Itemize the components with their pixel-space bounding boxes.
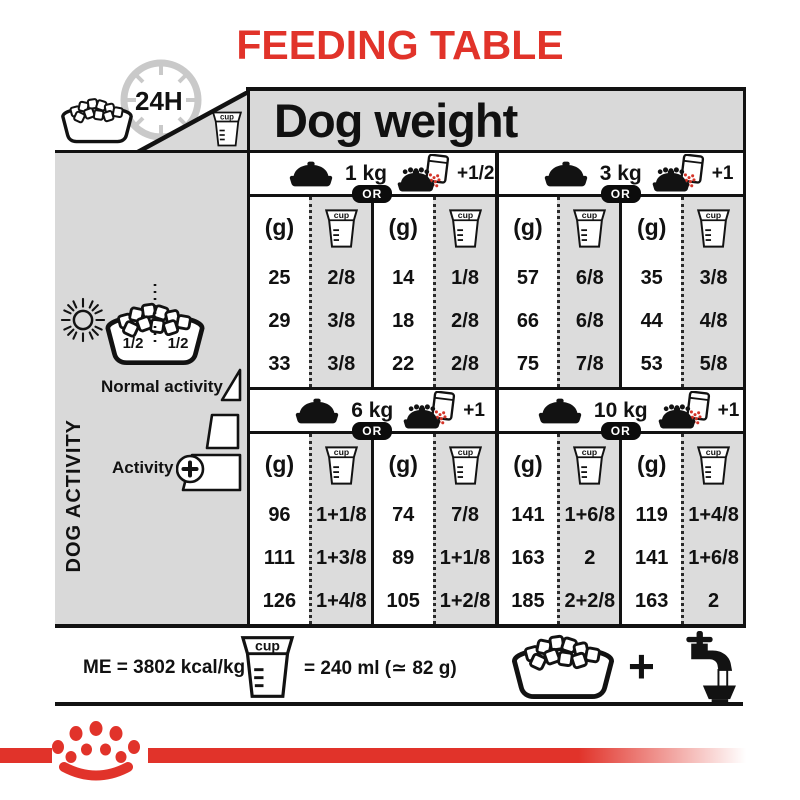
brand-strip-left (0, 748, 52, 763)
grams-column: (g) 119 141 163 (622, 434, 681, 624)
cup-icon (213, 113, 241, 146)
weight-group-1kg: 1 kg +1/2 OR (250, 153, 495, 194)
grams-value: 75 (499, 343, 558, 386)
weight-label: 10 kg (594, 399, 648, 422)
brand-strip (148, 748, 746, 763)
grams-value: 18 (374, 300, 433, 343)
cup-header (684, 434, 743, 494)
cup-value: 2 (560, 537, 619, 580)
cup-value: 1/8 (436, 257, 495, 300)
cup-icon (325, 208, 358, 249)
weight-band-row-2: 6 kg +1 OR 10 kg +1 OR (250, 390, 743, 434)
cup-column: 1+4/8 1+6/8 2 (681, 434, 743, 624)
activity-label: Activity (112, 458, 173, 478)
me-kcal-label: ME = 3802 kcal/kg (83, 657, 245, 679)
cup-column: 1+6/8 2 2+2/8 (557, 434, 619, 624)
cup-column: 3/8 4/8 5/8 (681, 197, 743, 387)
grams-value: 89 (374, 537, 433, 580)
cup-value: 7/8 (560, 343, 619, 386)
grams-value: 74 (374, 494, 433, 537)
pouch-extra-label: +1 (463, 400, 485, 422)
footer-info: ME = 3802 kcal/kg = 240 ml (≃ 82 g) + (55, 631, 746, 702)
grams-value: 105 (374, 580, 433, 623)
dog-weight-header: Dog weight (250, 91, 746, 150)
activity-ramp-icon (176, 366, 246, 492)
weight-group-6kg: 6 kg +1 OR (250, 390, 495, 431)
bowl-pouch-icon (397, 154, 453, 194)
grams-value: 126 (250, 580, 309, 623)
cup-column: 2/8 3/8 3/8 (309, 197, 371, 387)
weight-group-10kg: 10 kg +1 OR (499, 390, 744, 431)
grams-column: (g) 74 89 105 (374, 434, 433, 624)
grams-header: (g) (374, 197, 433, 257)
table-left-border (247, 87, 250, 628)
cup-value: 2+2/8 (560, 580, 619, 623)
table-bottom-border (55, 624, 746, 628)
or-badge: OR (601, 422, 641, 440)
cup-value: 1+3/8 (312, 537, 371, 580)
cup-value: 5/8 (684, 343, 743, 386)
cup-value: 1+4/8 (312, 580, 371, 623)
cup-header (312, 434, 371, 494)
cup-value: 3/8 (312, 300, 371, 343)
cup-icon (325, 445, 358, 486)
cup-icon (449, 208, 482, 249)
grams-column: (g) 25 29 33 (250, 197, 309, 387)
grams-header: (g) (250, 434, 309, 494)
cup-value: 6/8 (560, 257, 619, 300)
grams-header: (g) (622, 197, 681, 257)
24h-label: 24H (135, 86, 183, 117)
bowl-pouch-icon (658, 391, 714, 431)
weight-label: 1 kg (345, 162, 387, 185)
cup-icon (449, 445, 482, 486)
grams-value: 119 (622, 494, 681, 537)
dog-weight-label: Dog weight (274, 93, 517, 148)
cup-value: 1+6/8 (684, 537, 743, 580)
cup-value: 1+2/8 (436, 580, 495, 623)
bowl-icon (295, 398, 339, 424)
grams-column: (g) 14 18 22 (374, 197, 433, 387)
cup-value: 2/8 (436, 343, 495, 386)
grams-value: 33 (250, 343, 309, 386)
bowl-icon (544, 161, 588, 187)
cup-value: 1+4/8 (684, 494, 743, 537)
data-block-2: (g) 96 111 126 1+1/8 1+3/8 1+4/8 (g) 74 … (250, 434, 743, 624)
feeding-table-page: { "title": "FEEDING TABLE", "colors": {"… (0, 0, 800, 800)
cup-icon (240, 635, 295, 699)
grams-value: 141 (499, 494, 558, 537)
cup-column: 7/8 1+1/8 1+2/8 (433, 434, 495, 624)
cup-header (684, 197, 743, 257)
grams-value: 22 (374, 343, 433, 386)
cup-value: 1+1/8 (312, 494, 371, 537)
plus-sign: + (628, 643, 655, 689)
cup-header (560, 197, 619, 257)
or-badge: OR (352, 422, 392, 440)
cup-header (312, 197, 371, 257)
grams-value: 14 (374, 257, 433, 300)
bowl-pouch-icon (652, 154, 708, 194)
kibble-bowl-icon (502, 632, 624, 700)
cup-value: 1+6/8 (560, 494, 619, 537)
pouch-extra-label: +1 (718, 400, 740, 422)
faucet-water-icon (662, 631, 736, 703)
cup-value: 6/8 (560, 300, 619, 343)
half-left-label: 1/2 (123, 335, 144, 352)
pouch-extra-label: +1 (712, 163, 734, 185)
grams-value: 44 (622, 300, 681, 343)
grams-value: 163 (622, 580, 681, 623)
weight-label: 6 kg (351, 399, 393, 422)
grams-value: 96 (250, 494, 309, 537)
kibble-bowl-icon (56, 96, 138, 144)
cup-equivalence-label: = 240 ml (≃ 82 g) (304, 657, 457, 680)
grams-column: (g) 35 44 53 (622, 197, 681, 387)
cup-header (436, 197, 495, 257)
moon-icon (207, 297, 234, 329)
grams-column: (g) 141 163 185 (499, 434, 558, 624)
or-badge: OR (352, 185, 392, 203)
cup-icon (697, 208, 730, 249)
bowl-icon (289, 161, 333, 187)
cup-column: 1/8 2/8 2/8 (433, 197, 495, 387)
grams-value: 141 (622, 537, 681, 580)
cup-value: 2/8 (312, 257, 371, 300)
cup-value: 4/8 (684, 300, 743, 343)
grams-header: (g) (622, 434, 681, 494)
cup-icon (697, 445, 730, 486)
weight-band-row-1: 1 kg +1/2 OR 3 kg +1 OR (250, 153, 743, 197)
cup-value: 3/8 (312, 343, 371, 386)
grams-header: (g) (374, 434, 433, 494)
weight-group-3kg: 3 kg +1 OR (499, 153, 744, 194)
table-right-border (743, 87, 746, 628)
grams-value: 57 (499, 257, 558, 300)
bowl-icon (538, 398, 582, 424)
grams-column: (g) 96 111 126 (250, 434, 309, 624)
cup-icon (573, 208, 606, 249)
grams-value: 185 (499, 580, 558, 623)
dog-activity-axis: DOG ACTIVITY (56, 368, 92, 624)
grams-value: 111 (250, 537, 309, 580)
half-right-label: 1/2 (168, 335, 189, 352)
grams-column: (g) 57 66 75 (499, 197, 558, 387)
weight-label: 3 kg (600, 162, 642, 185)
grams-value: 35 (622, 257, 681, 300)
grams-value: 53 (622, 343, 681, 386)
cup-header (560, 434, 619, 494)
bowl-pouch-icon (403, 391, 459, 431)
cup-value: 1+1/8 (436, 537, 495, 580)
cup-column: 1+1/8 1+3/8 1+4/8 (309, 434, 371, 624)
footer-bottom-border (55, 702, 743, 706)
data-block-1: (g) 25 29 33 2/8 3/8 3/8 (g) 14 18 22 1/… (250, 197, 743, 387)
half-half-bowl-icon: 1/2 1/2 (98, 284, 212, 372)
grams-value: 163 (499, 537, 558, 580)
cup-header (436, 434, 495, 494)
cup-value: 3/8 (684, 257, 743, 300)
grams-value: 25 (250, 257, 309, 300)
grams-header: (g) (499, 434, 558, 494)
cup-value: 2/8 (436, 300, 495, 343)
cup-column: 6/8 6/8 7/8 (557, 197, 619, 387)
crown-logo (48, 720, 144, 784)
cup-icon (573, 445, 606, 486)
grams-value: 66 (499, 300, 558, 343)
cup-value: 2 (684, 580, 743, 623)
or-badge: OR (601, 185, 641, 203)
pouch-extra-label: +1/2 (457, 163, 495, 185)
grams-value: 29 (250, 300, 309, 343)
grams-header: (g) (499, 197, 558, 257)
grams-header: (g) (250, 197, 309, 257)
cup-value: 7/8 (436, 494, 495, 537)
